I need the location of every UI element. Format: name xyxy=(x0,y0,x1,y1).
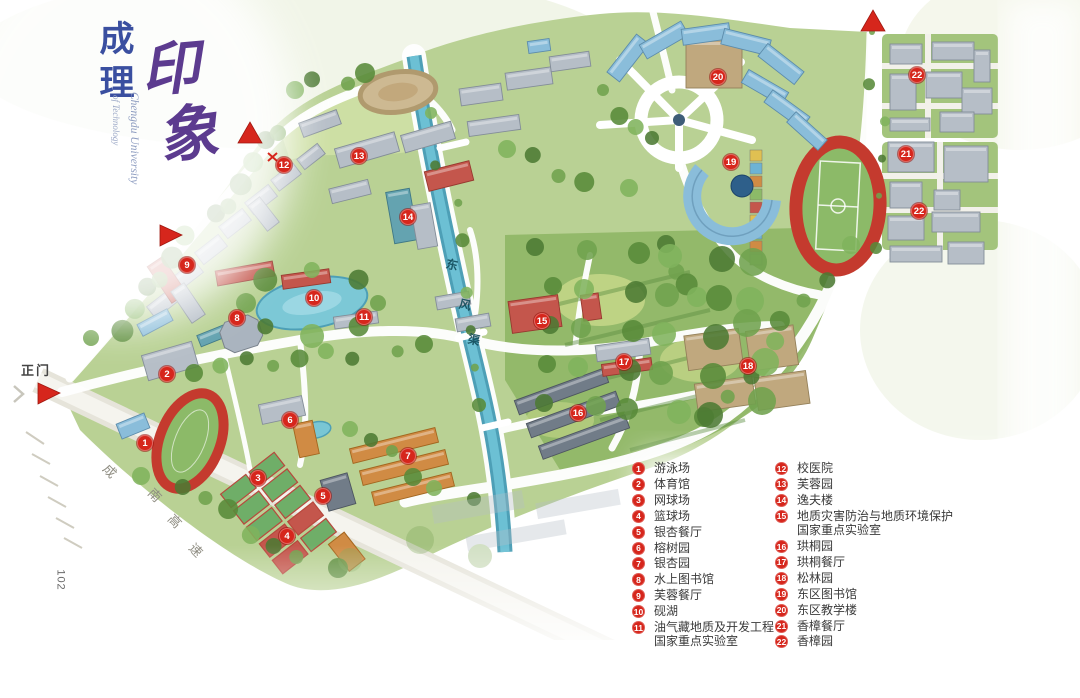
tree xyxy=(318,343,334,359)
tree xyxy=(386,445,398,457)
tree xyxy=(525,147,541,163)
tree xyxy=(83,330,99,346)
tree xyxy=(721,390,735,404)
map-marker-7: 7 xyxy=(400,448,416,464)
map-marker-1: 1 xyxy=(137,435,153,451)
legend-item-label: 银杏餐厅 xyxy=(654,525,702,539)
tree xyxy=(345,352,359,366)
tree xyxy=(526,238,544,256)
legend-item-label: 银杏园 xyxy=(654,556,690,570)
map-marker-13: 13 xyxy=(351,148,367,164)
map-marker-11: 11 xyxy=(356,309,372,325)
legend-item-label: 芙蓉餐厅 xyxy=(654,588,702,602)
legend-item-10: 10砚湖 xyxy=(632,604,797,618)
tree xyxy=(628,119,644,135)
legend-item-number: 3 xyxy=(632,494,645,507)
tree xyxy=(571,318,591,338)
east-gate-triangle-icon xyxy=(861,10,885,31)
tree xyxy=(472,398,486,412)
tree xyxy=(218,499,238,519)
map-marker-22: 22 xyxy=(909,67,925,83)
legend-item-label: 珙桐园 xyxy=(797,539,833,553)
sport-courts-strip xyxy=(750,150,762,265)
legend-item-label: 东区教学楼 xyxy=(797,603,857,617)
tree xyxy=(819,272,835,288)
map-marker-12: 12 xyxy=(276,157,292,173)
legend-item-number: 17 xyxy=(775,556,788,569)
tree xyxy=(341,77,355,91)
map-marker-2: 2 xyxy=(159,366,175,382)
title-calligraphy-char2: 象 xyxy=(151,82,223,177)
tree xyxy=(364,433,378,447)
tree xyxy=(454,199,462,207)
legend-item-3: 3网球场 xyxy=(632,493,797,507)
tree xyxy=(577,240,597,260)
legend-item-label: 砚湖 xyxy=(654,604,678,618)
legend-item-number: 20 xyxy=(775,604,788,617)
tree xyxy=(610,107,628,125)
legend-item-19: 19东区图书馆 xyxy=(775,587,1015,601)
tree xyxy=(687,287,707,307)
tree xyxy=(267,360,279,372)
tree xyxy=(842,236,860,254)
legend-item-16: 16珙桐园 xyxy=(775,539,1015,553)
tree xyxy=(240,351,254,365)
tree xyxy=(355,63,375,83)
legend-item-number: 9 xyxy=(632,589,645,602)
legend-item-21: 21香樟餐厅 xyxy=(775,619,1015,633)
legend-item-number: 2 xyxy=(632,478,645,491)
legend-item-number: 6 xyxy=(632,542,645,555)
legend-item-label: 芙蓉园 xyxy=(797,477,833,491)
title-english-line1: Chengdu University xyxy=(128,92,140,184)
building xyxy=(890,118,930,131)
map-marker-10: 10 xyxy=(306,290,322,306)
legend-item-12: 12校医院 xyxy=(775,461,1015,475)
tree xyxy=(544,277,562,295)
legend-item-label: 香樟园 xyxy=(797,634,833,648)
legend-column-right: 12校医院13芙蓉园14逸夫楼15地质灾害防治与地质环境保护国家重点实验室16珙… xyxy=(775,461,1015,650)
tree xyxy=(212,358,228,374)
tree xyxy=(185,364,203,382)
tree xyxy=(471,364,479,372)
legend-item-label: 水上图书馆 xyxy=(654,572,714,586)
legend-item-number: 19 xyxy=(775,588,788,601)
tree xyxy=(574,172,594,192)
tree xyxy=(552,169,566,183)
tree xyxy=(370,295,386,311)
east-track xyxy=(793,140,884,272)
map-marker-9: 9 xyxy=(179,257,195,273)
legend-item-label: 香樟餐厅 xyxy=(797,619,845,633)
legend-item-20: 20东区教学楼 xyxy=(775,603,1015,617)
tree xyxy=(870,242,882,254)
legend-item-number: 15 xyxy=(775,510,788,523)
legend-item-number: 14 xyxy=(775,494,788,507)
tree xyxy=(658,244,682,268)
map-marker-5: 5 xyxy=(315,488,331,504)
legend-item-label: 篮球场 xyxy=(654,509,690,523)
tree xyxy=(392,345,404,357)
legend-item-6: 6榕树园 xyxy=(632,541,797,555)
tree xyxy=(535,394,553,412)
page-number: 102 xyxy=(55,569,67,590)
legend-item-number: 13 xyxy=(775,478,788,491)
tree xyxy=(703,324,729,350)
tree xyxy=(597,84,609,96)
legend-item-number: 18 xyxy=(775,572,788,585)
legend-item-label: 珙桐餐厅 xyxy=(797,555,845,569)
tree xyxy=(586,396,606,416)
tree xyxy=(880,116,890,126)
legend-item-number: 21 xyxy=(775,620,788,633)
legend-item-11: 11油气藏地质及开发工程国家重点实验室 xyxy=(632,620,797,649)
legend-item-number: 12 xyxy=(775,462,788,475)
legend-item-number: 5 xyxy=(632,526,645,539)
legend-item-label: 榕树园 xyxy=(654,541,690,555)
legend-item-label: 体育馆 xyxy=(654,477,690,491)
legend-column-left: 1游泳场2体育馆3网球场4篮球场5银杏餐厅6榕树园7银杏园8水上图书馆9芙蓉餐厅… xyxy=(632,461,797,650)
tree xyxy=(748,387,776,415)
legend-item-number: 4 xyxy=(632,510,645,523)
map-marker-21: 21 xyxy=(898,146,914,162)
chevron-right-icon xyxy=(14,386,23,402)
legend-item-1: 1游泳场 xyxy=(632,461,797,475)
tree xyxy=(876,193,882,199)
tree xyxy=(700,363,726,389)
tree xyxy=(733,309,761,337)
legend-item-14: 14逸夫楼 xyxy=(775,493,1015,507)
tree xyxy=(242,526,260,544)
map-marker-20: 20 xyxy=(710,69,726,85)
legend-item-number: 11 xyxy=(632,621,645,634)
legend-item-number: 16 xyxy=(775,540,788,553)
tree xyxy=(426,480,442,496)
tree xyxy=(430,160,440,170)
tree xyxy=(175,479,191,495)
legend-item-label: 网球场 xyxy=(654,493,690,507)
map-marker-16: 16 xyxy=(570,405,586,421)
legend-item-label: 校医院 xyxy=(797,461,833,475)
legend-item-number: 7 xyxy=(632,557,645,570)
tree xyxy=(697,402,723,428)
tree xyxy=(655,283,679,307)
map-marker-22b: 22 xyxy=(911,203,927,219)
legend-item-label: 油气藏地质及开发工程国家重点实验室 xyxy=(654,620,774,649)
legend-item-label: 逸夫楼 xyxy=(797,493,833,507)
legend-item-number: 10 xyxy=(632,605,645,618)
map-marker-6: 6 xyxy=(282,412,298,428)
legend-item-17: 17珙桐餐厅 xyxy=(775,555,1015,569)
map-marker-3: 3 xyxy=(250,470,266,486)
title-cn-char: 成 xyxy=(97,18,137,62)
tree xyxy=(652,322,676,346)
tree xyxy=(291,350,309,368)
legend-item-15: 15地质灾害防治与地质环境保护国家重点实验室 xyxy=(775,509,1015,538)
main-gate-label: 正门 xyxy=(21,360,51,379)
page: 成理 印 象 Chengdu University of Technology … xyxy=(0,0,1080,698)
tree xyxy=(649,361,673,385)
tree xyxy=(498,140,516,158)
legend-item-5: 5银杏餐厅 xyxy=(632,525,797,539)
title-english-line2: of Technology xyxy=(111,95,121,145)
tree xyxy=(253,268,277,292)
map-marker-18: 18 xyxy=(740,358,756,374)
map-marker-17: 17 xyxy=(616,354,632,370)
tree xyxy=(878,155,886,163)
tree xyxy=(667,400,691,424)
tree xyxy=(770,311,790,331)
legend-item-8: 8水上图书馆 xyxy=(632,572,797,586)
legend-item-4: 4篮球场 xyxy=(632,509,797,523)
tree xyxy=(538,355,556,373)
legend-item-2: 2体育馆 xyxy=(632,477,797,491)
tree xyxy=(625,281,647,303)
tree xyxy=(739,248,767,276)
legend-item-label: 松林园 xyxy=(797,571,833,585)
tree xyxy=(404,468,422,486)
tree xyxy=(766,332,784,350)
legend-item-13: 13芙蓉园 xyxy=(775,477,1015,491)
tree xyxy=(628,242,650,264)
tree xyxy=(415,335,433,353)
legend-item-18: 18松林园 xyxy=(775,571,1015,585)
legend-item-number: 8 xyxy=(632,573,645,586)
tree xyxy=(304,71,320,87)
building xyxy=(944,146,988,182)
legend-item-22: 22香樟园 xyxy=(775,634,1015,648)
map-marker-14: 14 xyxy=(400,209,416,225)
map-marker-4: 4 xyxy=(279,528,295,544)
tree xyxy=(198,491,212,505)
map-marker-8: 8 xyxy=(229,310,245,326)
legend-item-7: 7银杏园 xyxy=(632,556,797,570)
legend-item-number: 22 xyxy=(775,635,788,648)
tree xyxy=(257,318,273,334)
tree xyxy=(568,357,588,377)
tree xyxy=(706,285,732,311)
tree xyxy=(616,398,638,420)
legend-item-label: 游泳场 xyxy=(654,461,690,475)
tree xyxy=(300,324,324,348)
tree xyxy=(349,270,369,290)
tree xyxy=(709,246,735,272)
tree xyxy=(620,179,638,197)
map-marker-19: 19 xyxy=(723,154,739,170)
legend-item-label: 地质灾害防治与地质环境保护国家重点实验室 xyxy=(797,509,953,538)
legend-item-label: 东区图书馆 xyxy=(797,587,857,601)
tree xyxy=(863,78,875,90)
tree xyxy=(574,279,594,299)
tree xyxy=(622,320,644,342)
map-marker-15: 15 xyxy=(534,313,550,329)
tree xyxy=(304,262,320,278)
tree xyxy=(342,421,358,437)
tree xyxy=(425,107,437,119)
tree xyxy=(645,131,659,145)
legend-item-9: 9芙蓉餐厅 xyxy=(632,588,797,602)
tree xyxy=(132,467,150,485)
tree xyxy=(797,294,811,308)
legend-item-number: 1 xyxy=(632,462,645,475)
tree xyxy=(455,233,469,247)
